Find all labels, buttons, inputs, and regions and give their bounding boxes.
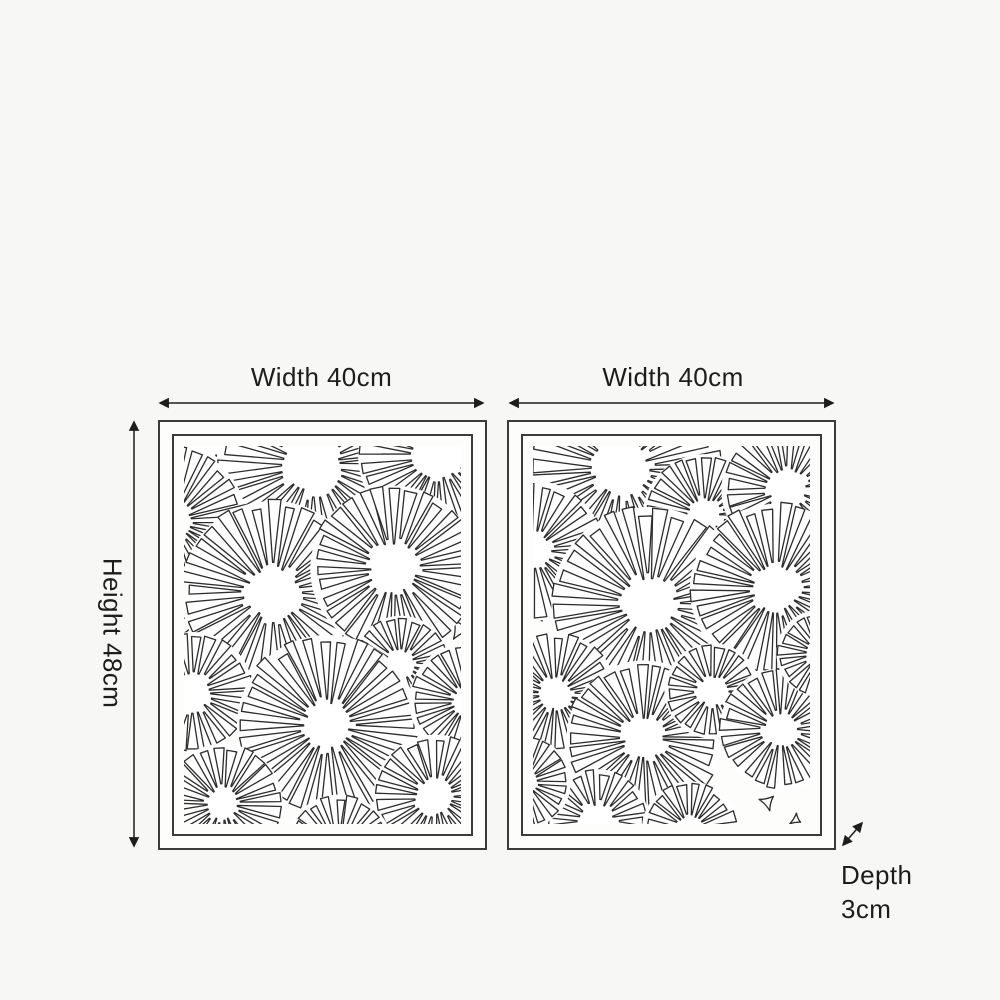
right-panel-pattern [533,446,810,824]
left-panel-pattern [184,446,461,824]
depth-label-line1: Depth [841,858,912,892]
left-art-frame [158,420,487,850]
dimension-arrows [0,0,1000,1000]
right-art-frame [507,420,836,850]
depth-label: Depth 3cm [841,858,912,927]
depth-arrow [843,823,862,845]
product-dimension-diagram: Width 40cm Width 40cm Height 48cm Depth … [0,0,1000,1000]
width-label-left: Width 40cm [156,362,487,393]
depth-label-line2: 3cm [841,892,912,926]
width-label-right: Width 40cm [507,362,839,393]
height-label: Height 48cm [97,558,128,708]
